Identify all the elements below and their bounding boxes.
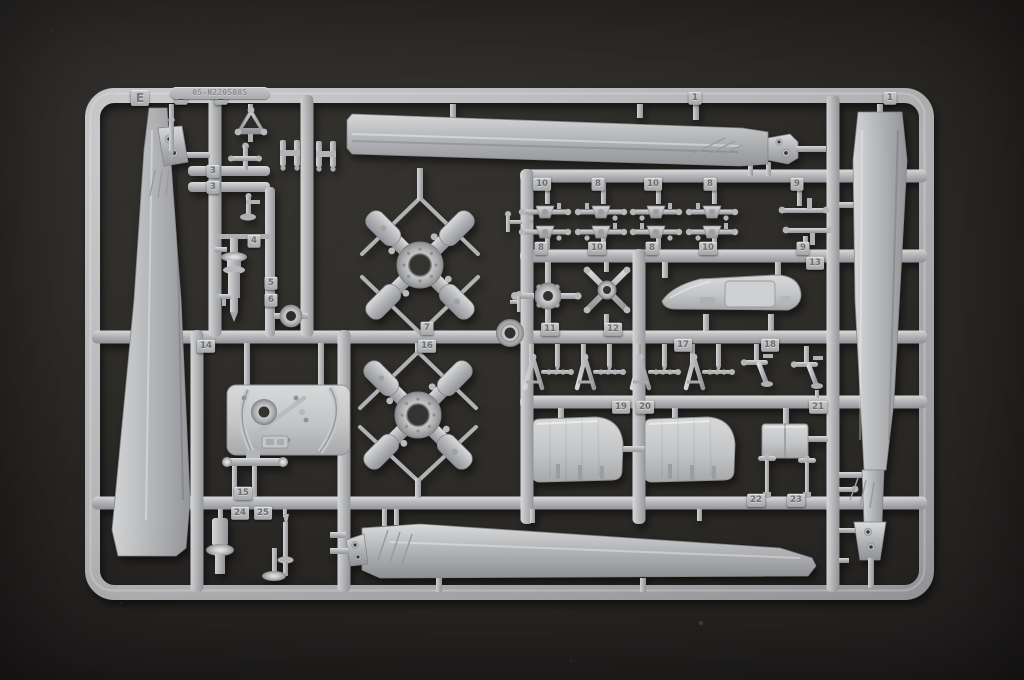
- part-number-tag: 9: [797, 242, 810, 255]
- part-number-tag: 14: [197, 340, 215, 353]
- part-number-tag: 8: [535, 242, 548, 255]
- part-number-tag: 3: [207, 181, 220, 194]
- part-number-tag: 3: [207, 165, 220, 178]
- part-number-tag: 8: [646, 242, 659, 255]
- part-number-tag: 18: [761, 339, 779, 352]
- part-number-tag: 10: [533, 178, 551, 191]
- mold-code: 05-H2205085: [170, 87, 270, 99]
- photo-canvas: E 05-H2205085 12113345610810898108109131…: [0, 0, 1024, 680]
- part-number-tag: 10: [588, 242, 606, 255]
- part-number-tag: 15: [234, 487, 252, 500]
- part-number-tag: 10: [644, 178, 662, 191]
- part-number-tag: 19: [612, 401, 630, 414]
- part-number-tag: 24: [231, 507, 249, 520]
- sprue-letter-tag: E: [131, 90, 149, 106]
- part-number-tag: 13: [806, 257, 824, 270]
- part-number-tag: 6: [265, 294, 278, 307]
- part-number-tag: 11: [541, 323, 559, 336]
- part-number-tag: 17: [674, 339, 692, 352]
- part-number-tag: 8: [704, 178, 717, 191]
- part-number-tag: 21: [809, 401, 827, 414]
- part-number-tag: 23: [787, 494, 805, 507]
- part-number-tag: 1: [884, 92, 897, 105]
- part-number-tag: 4: [248, 235, 261, 248]
- part-number-tag: 1: [689, 92, 702, 105]
- part-number-tag: 7: [421, 322, 434, 335]
- part-number-tag: 22: [747, 494, 765, 507]
- part-number-tag: 8: [592, 178, 605, 191]
- part-number-tag: 10: [699, 242, 717, 255]
- part-number-tag: 20: [636, 401, 654, 414]
- part-number-tag: 5: [265, 277, 278, 290]
- part-number-tag: 16: [418, 340, 436, 353]
- part-number-tag: 9: [791, 178, 804, 191]
- part-tags-layer: E 05-H2205085 12113345610810898108109131…: [0, 0, 1024, 680]
- part-number-tag: 25: [254, 507, 272, 520]
- part-number-tag: 12: [604, 323, 622, 336]
